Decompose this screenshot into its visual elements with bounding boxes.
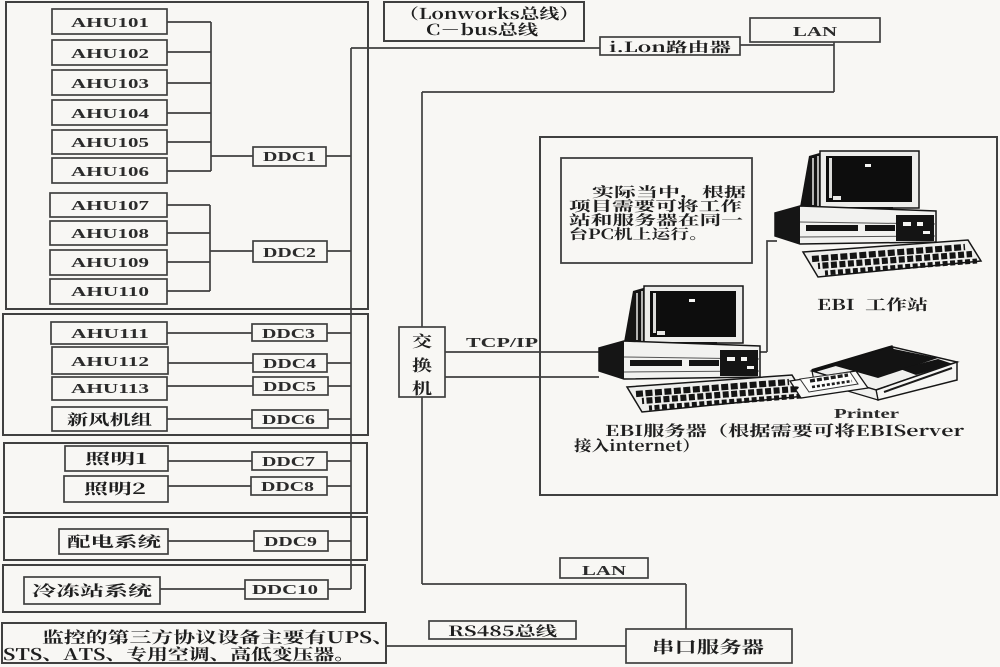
svg-text:AHU110: AHU110 — [71, 285, 149, 300]
svg-text:Printer: Printer — [834, 407, 899, 422]
svg-text:DDC2: DDC2 — [263, 246, 316, 261]
svg-text:AHU104: AHU104 — [71, 107, 149, 122]
svg-text:DDC9: DDC9 — [264, 535, 317, 550]
svg-text:DDC3: DDC3 — [262, 327, 315, 342]
svg-text:AHU101: AHU101 — [71, 16, 149, 31]
svg-text:AHU109: AHU109 — [71, 256, 149, 271]
svg-text:DDC10: DDC10 — [252, 583, 318, 598]
svg-text:DDC6: DDC6 — [262, 413, 315, 428]
svg-text:DDC4: DDC4 — [263, 357, 316, 372]
svg-text:DDC5: DDC5 — [263, 380, 316, 395]
svg-text:AHU112: AHU112 — [71, 355, 149, 370]
svg-text:DDC8: DDC8 — [261, 480, 314, 495]
svg-text:AHU113: AHU113 — [71, 382, 149, 397]
svg-text:DDC1: DDC1 — [263, 150, 316, 165]
svg-text:AHU106: AHU106 — [71, 165, 149, 180]
svg-text:TCP/IP: TCP/IP — [466, 336, 539, 351]
svg-text:AHU103: AHU103 — [71, 77, 149, 92]
svg-text:AHU107: AHU107 — [71, 199, 149, 214]
svg-text:DDC7: DDC7 — [262, 455, 315, 470]
svg-text:LAN: LAN — [582, 564, 626, 579]
svg-text:AHU111: AHU111 — [71, 327, 149, 342]
svg-text:AHU108: AHU108 — [71, 227, 149, 242]
svg-text:AHU105: AHU105 — [71, 136, 149, 151]
svg-text:AHU102: AHU102 — [71, 47, 149, 62]
svg-text:LAN: LAN — [793, 25, 837, 40]
